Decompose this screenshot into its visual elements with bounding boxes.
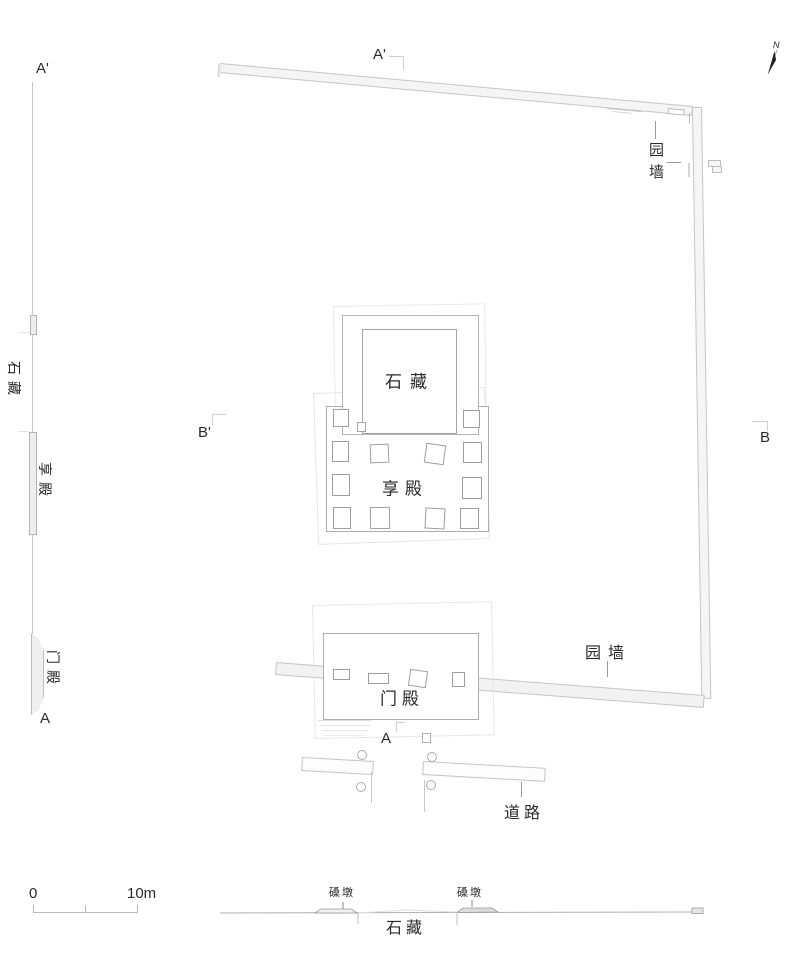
column-base	[370, 444, 390, 464]
enclosure-wall-top	[219, 63, 693, 116]
plan-mark-b-right: B	[760, 429, 770, 446]
section-gate-hall-label: 门殿	[43, 650, 63, 690]
section-left-mark-top: A'	[36, 60, 49, 77]
section-stone-chamber-bar	[30, 315, 37, 335]
column-base	[460, 508, 479, 529]
column-base	[333, 669, 350, 680]
wall-label-topright: 园墙	[645, 142, 666, 186]
column-base	[332, 474, 350, 496]
wall-corner-tick	[689, 113, 690, 124]
section-tick	[18, 332, 30, 333]
road-edge-line	[371, 772, 372, 803]
scale-bar-tick	[33, 905, 34, 913]
outside-stone	[712, 166, 722, 173]
road-post-circle	[426, 780, 436, 790]
scale-bar-start: 0	[29, 885, 37, 902]
plan-mark-a-top: A'	[373, 46, 386, 63]
road-label: 道路	[504, 799, 544, 823]
wall-leader-line	[655, 121, 656, 139]
road-edge-line	[424, 780, 425, 812]
column-base	[462, 477, 482, 499]
section-cut-bracket	[389, 56, 404, 70]
gate-hall-label: 门殿	[380, 685, 424, 710]
small-stone	[422, 733, 431, 743]
wall-inner-mark	[688, 163, 690, 177]
north-arrow-icon: N	[760, 40, 788, 78]
scale-bar-tick	[137, 905, 138, 913]
stone-chamber-elevation	[215, 896, 710, 944]
plan-mark-a-bottom: A	[381, 730, 391, 747]
section-cut-bracket	[752, 421, 768, 431]
enclosure-wall-right	[692, 107, 711, 699]
stone-chamber-notch	[357, 422, 366, 432]
road-post-circle	[427, 752, 437, 762]
wall-leader-line	[607, 661, 608, 677]
column-base	[333, 507, 351, 529]
section-offering-hall-label: 享殿	[35, 462, 55, 502]
section-left-mark-bottom: A	[40, 710, 50, 727]
pier-left-label: 磉墩	[329, 884, 355, 900]
road-leader-line	[521, 782, 522, 797]
site-plan-canvas: A' 石藏 享殿 门殿 A N A' 园墙 B' B	[0, 0, 800, 960]
section-line-vertical	[32, 82, 33, 712]
road-right-segment	[422, 761, 546, 782]
gate-steps-line	[320, 725, 370, 726]
wall-stone	[667, 108, 684, 116]
column-base	[370, 507, 390, 529]
road-post-circle	[357, 750, 367, 760]
wall-leader-dash	[667, 162, 681, 163]
pier-right-label: 磉墩	[457, 884, 483, 900]
section-stone-chamber-label: 石藏	[4, 361, 24, 401]
column-base	[463, 410, 480, 428]
wall-debris-line	[612, 111, 632, 114]
wall-end-cap	[217, 64, 221, 77]
gate-steps-line	[322, 730, 368, 731]
offering-hall-label: 享殿	[382, 475, 428, 500]
column-base	[452, 672, 465, 687]
gate-steps-line	[318, 720, 372, 721]
column-base	[368, 673, 389, 684]
column-base	[424, 507, 445, 529]
section-cut-bracket	[212, 414, 226, 425]
road-post-circle	[356, 782, 366, 792]
gate-steps-line	[324, 735, 366, 736]
column-base	[332, 441, 349, 462]
section-tick	[18, 431, 29, 432]
stone-chamber-label: 石藏	[385, 368, 435, 393]
section-cut-bracket	[396, 722, 405, 732]
column-base	[333, 409, 349, 427]
wall-label-bottom: 园墙	[585, 639, 631, 663]
scale-bar-tick	[85, 905, 86, 913]
scale-bar-end: 10m	[127, 885, 156, 902]
elevation-stone-chamber-label: 石藏	[386, 914, 426, 938]
column-base	[463, 442, 482, 463]
plan-mark-b-left: B'	[198, 424, 211, 441]
column-base	[424, 443, 447, 466]
